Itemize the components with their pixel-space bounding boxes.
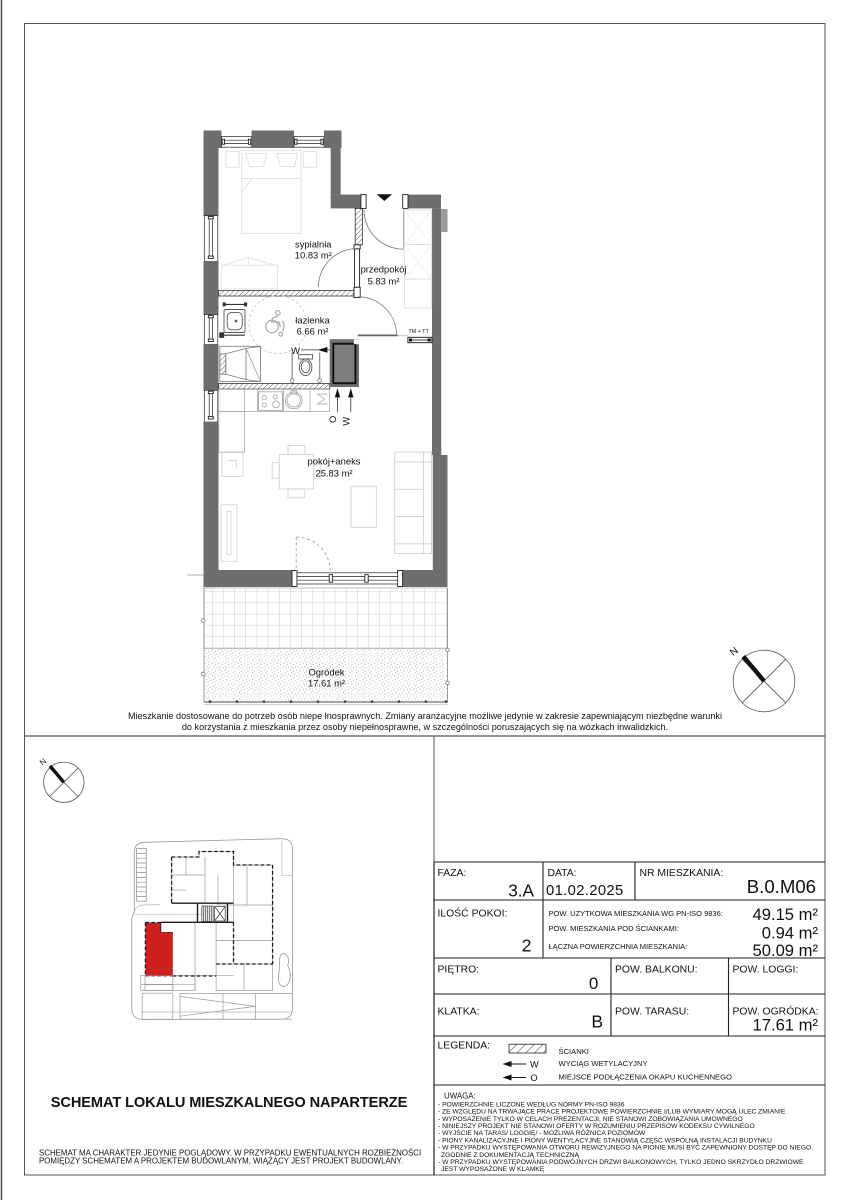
svg-text:0: 0 [589,974,598,993]
svg-text:N: N [728,645,740,658]
svg-text:ZGODNIE Z DOKUMENTACJĄ TECHNIC: ZGODNIE Z DOKUMENTACJĄ TECHNICZNĄ [441,1152,580,1159]
svg-text:O: O [531,1073,538,1083]
svg-text:W: W [530,1060,539,1070]
svg-text:sypialnia: sypialnia [295,238,332,249]
svg-text:5.83 m²: 5.83 m² [368,275,400,286]
svg-text:przedpokój: przedpokój [361,263,407,274]
svg-text:UWAGA:: UWAGA: [444,1092,476,1101]
svg-text:ŁĄCZNA POWIERZCHNIA MIESZKANIA: ŁĄCZNA POWIERZCHNIA MIESZKANIA: [549,942,688,951]
svg-text:Ogródek: Ogródek [309,667,345,678]
svg-text:LEGENDA:: LEGENDA: [438,1041,491,1052]
svg-text:POW. TARASU:: POW. TARASU: [615,1007,689,1018]
svg-text:Mieszkanie dostosowane do potr: Mieszkanie dostosowane do potrzeb osób n… [128,711,722,721]
svg-text:POW. LOGGI:: POW. LOGGI: [733,965,799,976]
svg-text:2: 2 [522,935,532,955]
svg-text:ŚCIANKI: ŚCIANKI [559,1047,589,1056]
svg-text:25.83 m²: 25.83 m² [316,468,353,479]
svg-text:6.66 m²: 6.66 m² [297,325,329,336]
svg-text:50.09 m²: 50.09 m² [753,941,819,960]
svg-text:01.02.2025: 01.02.2025 [546,883,624,899]
svg-text:do korzystania z mieszkania pr: do korzystania z mieszkania przez osoby … [182,722,668,732]
svg-text:O: O [328,416,339,423]
svg-text:MIEJSCE PODŁĄCZENIA OKAPU KUCH: MIEJSCE PODŁĄCZENIA OKAPU KUCHENNEGO [559,1073,733,1082]
svg-text:- WYJŚCIE NA TARAS/ LOGGIĘ/ -: - WYJŚCIE NA TARAS/ LOGGIĘ/ - MOŻLIWA RÓ… [438,1128,646,1137]
svg-text:- W PRZYPADKU WYSTĘPOWANIA POD: - W PRZYPADKU WYSTĘPOWANIA PODWÓJNYCH DR… [438,1157,804,1166]
svg-text:B: B [591,1012,603,1032]
svg-text:JEST WYPOSAŻONE W KLAMKĘ: JEST WYPOSAŻONE W KLAMKĘ [441,1164,545,1173]
svg-text:- NINIEJSZY PROJEKT NIE STANOW: - NINIEJSZY PROJEKT NIE STANOWI OFERTY W… [438,1121,755,1130]
svg-text:N: N [38,757,48,768]
svg-text:KLATKA:: KLATKA: [438,1007,480,1018]
svg-text:- ZE WZGLĘDU NA TRWAJĄCE PRACE: - ZE WZGLĘDU NA TRWAJĄCE PRACE PROJEKTOW… [438,1109,786,1116]
svg-text:łazienka: łazienka [295,315,330,326]
svg-text:17.61 m²: 17.61 m² [308,678,345,689]
svg-text:POW. BALKONU:: POW. BALKONU: [615,965,698,976]
svg-text:- W PRZYPADKU WYSTĘPOWANIA OTW: - W PRZYPADKU WYSTĘPOWANIA OTWORU REWIZY… [438,1143,813,1152]
svg-text:10.83 m²: 10.83 m² [295,249,332,260]
svg-text:- PIONY KANALIZACYJNE I PIONY: - PIONY KANALIZACYJNE I PIONY WENTYLACYJ… [438,1135,772,1144]
svg-text:FAZA:: FAZA: [438,868,467,879]
svg-text:ILOŚĆ POKOI:: ILOŚĆ POKOI: [438,907,508,920]
svg-text:3.A: 3.A [508,881,534,901]
svg-text:TM + TT: TM + TT [409,329,430,335]
svg-text:DATA:: DATA: [548,868,577,879]
svg-text:SCHEMAT LOKALU MIESZKALNEGO NA: SCHEMAT LOKALU MIESZKALNEGO NAPARTERZE [51,1095,408,1111]
svg-text:B.0.M06: B.0.M06 [747,876,816,897]
svg-text:W: W [291,345,300,356]
svg-text:W: W [341,417,352,426]
svg-text:POW. UŻYTKOWA MIESZKANIA WG PN: POW. UŻYTKOWA MIESZKANIA WG PN-ISO 9836: [549,909,723,918]
svg-text:WYCIĄG WETYLACYJNY: WYCIĄG WETYLACYJNY [559,1059,648,1068]
svg-text:49.15 m²: 49.15 m² [753,905,819,924]
svg-text:POMIĘDZY SCHEMATEM A PROJEKTEM: POMIĘDZY SCHEMATEM A PROJEKTEM BUDOWLANY… [39,1157,403,1166]
svg-text:0.94 m²: 0.94 m² [762,924,819,943]
svg-text:- WYPOSAŻENIE TYLKO W CELACH P: - WYPOSAŻENIE TYLKO W CELACH PREZENTACJI… [438,1114,743,1123]
svg-text:17.61 m²: 17.61 m² [753,1016,819,1035]
svg-text:POW. MIESZKANIA POD ŚCIANKAMI: POW. MIESZKANIA POD ŚCIANKAMI: [549,924,679,933]
svg-text:NR MIESZKANIA:: NR MIESZKANIA: [640,868,724,879]
svg-text:PIĘTRO:: PIĘTRO: [438,965,480,976]
svg-text:pokój+aneks: pokój+aneks [308,456,361,467]
svg-text:- POWIERZCHNIE LICZONE WEDŁUG: - POWIERZCHNIE LICZONE WEDŁUG NORMY PN-I… [438,1101,625,1108]
